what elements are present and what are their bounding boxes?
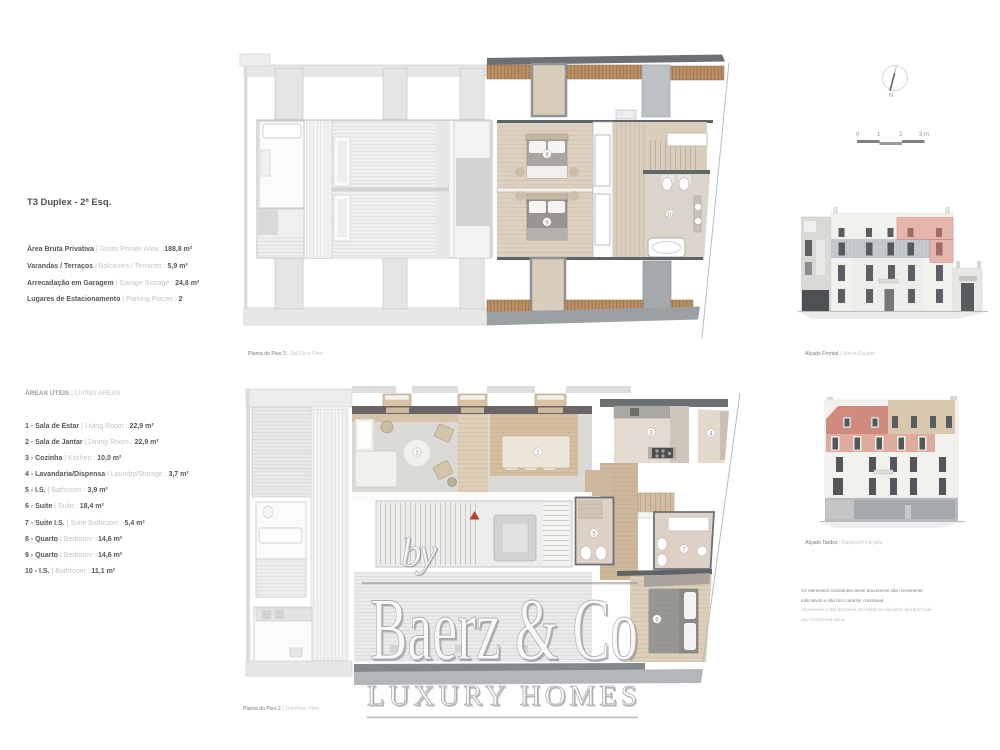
svg-text:2: 2 — [899, 132, 903, 138]
svg-text:3 m: 3 m — [919, 132, 929, 138]
svg-text:0: 0 — [856, 132, 860, 138]
svg-text:N: N — [889, 93, 893, 99]
svg-text:1: 1 — [877, 132, 881, 138]
svg-text:10: 10 — [667, 213, 673, 219]
